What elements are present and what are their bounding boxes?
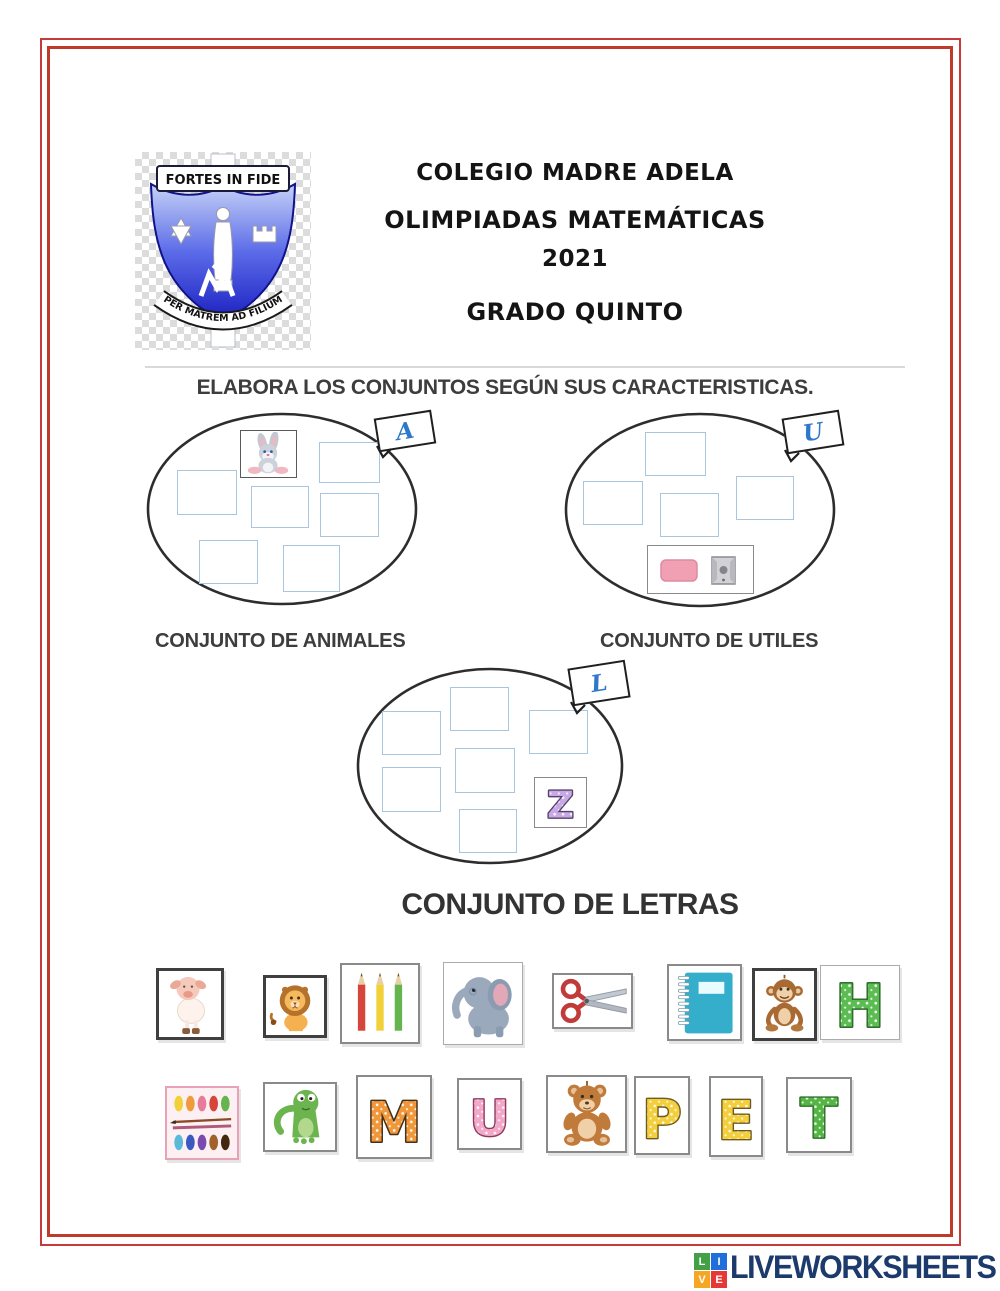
drop-slot-letras-3[interactable] [529,710,588,754]
tower-icon [253,226,276,242]
letter-h-icon: H [821,966,899,1039]
drop-slot-utiles-3[interactable] [660,493,719,537]
drop-slot-animales-3[interactable] [251,486,309,528]
paint-palette-icon [168,1089,236,1157]
drop-slot-letras-1[interactable] [450,687,509,731]
event-title: OLIMPIADAS MATEMÁTICAS [330,206,820,234]
example-letter-z: Z [534,777,587,828]
elephant-icon [447,967,519,1041]
colored-pencils-icon [345,968,415,1040]
tag-arrow-icon [782,448,802,464]
drop-slot-letras-5[interactable] [382,767,441,812]
drop-slot-animales-6[interactable] [283,545,340,592]
crest-motto-top: FORTES IN FIDE [166,173,281,188]
draggable-paint-palette[interactable] [165,1086,239,1160]
section-divider [145,366,905,368]
tag-arrow-icon [568,700,588,716]
green-monster-icon [268,1087,332,1147]
drop-slot-letras-6[interactable] [459,809,517,853]
svg-text:T: T [800,1087,837,1151]
svg-text:U: U [470,1091,510,1148]
set-tag-letter-a: A [394,416,416,445]
rabbit-icon [244,432,294,476]
grade-title: GRADO QUINTO [330,298,820,326]
logo-tile-v: V [694,1271,710,1288]
liveworksheets-brand-text[interactable]: LIVEWORKSHEETS [730,1249,995,1286]
drop-slot-animales-2[interactable] [177,470,237,515]
letter-p-icon: P [636,1078,688,1153]
svg-text:M: M [367,1091,422,1155]
draggable-elephant[interactable] [443,962,523,1045]
draggable-green-monster[interactable] [263,1082,337,1152]
draggable-monkey[interactable] [752,968,817,1041]
tag-arrow-icon [374,444,394,460]
draggable-teddy-bear[interactable] [546,1075,627,1153]
teddy-bear-icon [552,1080,622,1148]
set-tag-letter-l: L [589,668,609,697]
letter-z-icon: Z [536,779,585,826]
draggable-letter-t[interactable]: T [786,1077,852,1153]
draggable-letter-h[interactable]: H [820,965,900,1040]
worksheet-page: FORTES IN FIDE PER MATREM AD FILIUM [0,0,1000,1291]
drop-slot-letras-2[interactable] [382,711,441,755]
header-titles: COLEGIO MADRE ADELA OLIMPIADAS MATEMÁTIC… [330,160,820,326]
label-conjunto-letras: CONJUNTO DE LETRAS [320,888,820,922]
drop-slot-utiles-4[interactable] [736,476,794,520]
draggable-letter-u[interactable]: U [457,1078,522,1150]
example-rabbit [240,430,297,478]
letter-m-icon: M [358,1077,430,1157]
draggable-colored-pencils[interactable] [340,963,420,1044]
logo-tile-l: L [694,1253,710,1270]
example-eraser-sharpener [647,545,754,594]
monkey-icon [757,973,812,1036]
school-name: COLEGIO MADRE ADELA [330,160,820,186]
lion-icon [268,980,322,1034]
school-crest: FORTES IN FIDE PER MATREM AD FILIUM [135,152,311,350]
svg-text:Z: Z [547,784,574,826]
draggable-notebook[interactable] [667,964,742,1041]
instruction-text: ELABORA LOS CONJUNTOS SEGÚN SUS CARACTER… [145,376,865,400]
scissors-icon [556,977,630,1025]
draggable-letter-m[interactable]: M [356,1075,432,1159]
drop-slot-utiles-1[interactable] [645,432,706,476]
eraser-and-sharpener-icon [651,549,751,591]
drop-slot-animales-4[interactable] [320,493,379,537]
notebook-icon [672,969,738,1037]
set-tag-letter-u: U [801,417,825,447]
draggable-pig[interactable] [156,968,224,1040]
letter-e-icon: E [711,1078,761,1155]
drop-slot-utiles-2[interactable] [583,481,643,525]
pig-icon [161,972,219,1036]
draggable-letter-e[interactable]: E [709,1076,763,1157]
svg-text:H: H [836,972,885,1039]
liveworksheets-logo-icon[interactable]: L I V E [694,1253,727,1288]
drop-slot-animales-1[interactable] [319,442,380,483]
svg-text:P: P [642,1088,681,1151]
draggable-letter-p[interactable]: P [634,1076,690,1155]
drop-slot-letras-4[interactable] [455,748,515,793]
draggable-lion[interactable] [263,975,327,1038]
letter-t-icon: T [788,1079,850,1151]
logo-tile-i: I [711,1253,727,1270]
logo-tile-e: E [711,1271,727,1288]
label-conjunto-animales: CONJUNTO DE ANIMALES [155,630,405,653]
svg-text:E: E [718,1089,755,1152]
label-conjunto-utiles: CONJUNTO DE UTILES [600,630,818,653]
drop-slot-animales-5[interactable] [199,540,258,584]
event-year: 2021 [330,246,820,272]
draggable-scissors[interactable] [552,973,633,1029]
letter-u-icon: U [459,1080,520,1148]
